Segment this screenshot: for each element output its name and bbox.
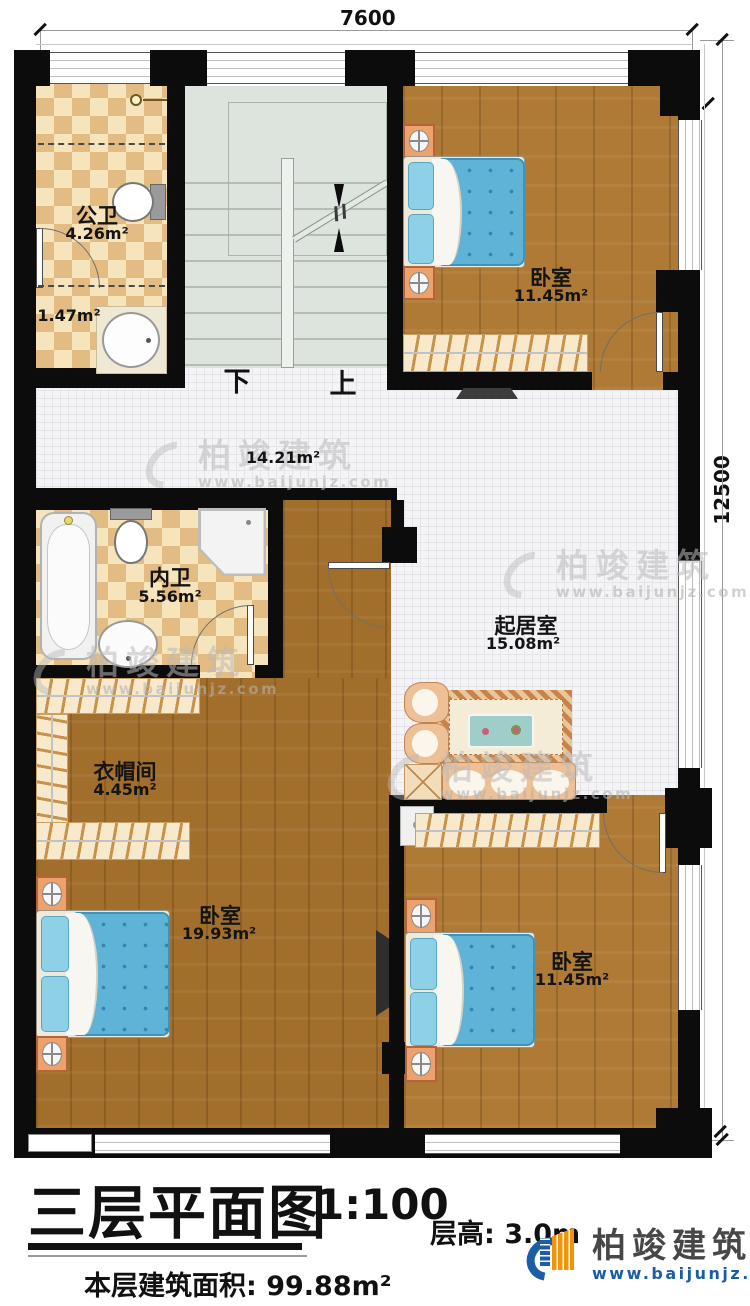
sofa-cushion [533,770,569,796]
wall-segment [268,510,283,678]
room-area-inner-bath: 5.56m² [138,587,201,606]
brand-logo-icon [528,1224,584,1288]
nightstand-plate [411,1052,431,1076]
break-zigzag [334,206,337,221]
wall-segment [255,665,283,678]
wall-segment [36,488,283,510]
room-area-hall: 14.21m² [246,448,320,467]
plan-scale: 1:100 [315,1180,449,1229]
brand-name: 柏竣建筑 [592,1229,750,1265]
title-underline-thin [28,1255,307,1257]
window [415,52,628,84]
window [678,865,702,1010]
top-dimension-line [40,30,692,31]
tv [456,388,518,399]
table-flower-icon [482,728,489,735]
stair-direction-arrow-up-icon [334,228,344,252]
wall-segment [665,788,712,848]
coffee-table [468,714,534,748]
bed-pillow [408,162,434,210]
wall-segment [387,372,592,390]
partition-dashed-line [38,285,165,287]
outer-reference-line [36,44,692,45]
nightstand-plate [42,882,62,906]
window [425,1134,620,1154]
toilet-bowl [112,182,154,222]
stair-direction-arrow-down-icon [334,184,344,208]
stair-up-label: 上 [330,362,357,401]
nightstand-plate [409,130,429,152]
toilet-tank [110,508,152,520]
logo-building-blue [540,1238,550,1266]
partition-dashed-line [38,143,165,145]
sink-faucet-dot [126,656,131,661]
nightstand [405,1046,437,1082]
window [95,1134,330,1154]
bathtub-faucet [64,516,73,525]
wardrobe [36,714,68,830]
wall-segment [283,488,397,500]
wall-lamp-stem [143,99,167,101]
room-area-bedroom-top: 11.45m² [514,286,588,305]
bathtub [40,512,97,660]
nightstand-plate [409,272,429,294]
room-area-public-bath: 4.26m² [65,224,128,243]
room-area-living: 15.08m² [486,634,560,653]
brand-url: www.baijunjz.com [592,1264,750,1283]
title-underline [28,1243,302,1250]
top-dimension-label: 7600 [340,6,396,30]
floor-plan-page: 7600 12500 下 上 [0,0,750,1306]
right-dimension-line [722,40,723,1140]
room-area-anteroom: 1.47m² [37,306,100,325]
outer-reference-line [704,44,705,1154]
stairwell [185,86,387,368]
room-area-cloakroom: 4.45m² [93,780,156,799]
wall-segment [382,527,417,563]
sofa-cushion [491,770,527,796]
nightstand [36,1036,68,1072]
brand-logo: 柏竣建筑 www.baijunjz.com [528,1224,750,1288]
bathtub-basin [47,524,90,650]
top-dimension-ext-right [692,30,693,50]
toilet-bowl [114,520,148,564]
sofa-cushion [449,770,485,796]
wardrobe [36,822,190,860]
wall-segment [663,372,678,390]
wardrobe [415,813,600,848]
wall-segment [14,50,36,1158]
stair-down-label: 下 [224,360,251,399]
room-area-bedroom-right: 11.45m² [535,970,609,989]
logo-building-orange [552,1228,574,1270]
armchair-cushion [412,730,438,757]
floor-area-label: 本层建筑面积: 99.88m² [84,1264,392,1303]
wall-segment [345,50,415,86]
window [207,52,345,84]
plan-title: 三层平面图 [28,1166,328,1250]
nightstand [36,876,68,912]
tv [376,930,389,1016]
stair-handrail [281,158,294,368]
wardrobe [403,334,588,372]
armchair-cushion [412,689,438,716]
window [678,561,702,768]
bed-pillow [41,976,69,1032]
top-dimension-ext-left [40,30,41,50]
window [50,52,150,84]
bed-pillow [41,916,69,972]
armchair [404,682,449,723]
sink-faucet-dot [146,338,151,343]
table-flower-icon [510,724,522,736]
window [678,120,702,270]
wall-segment [391,500,404,530]
bed-pillow [410,938,437,990]
sink-basin [102,312,160,368]
bed-pillow [410,992,437,1046]
corner-side-table [404,764,442,800]
sofa-seats [442,762,576,800]
shower-drain-dot [246,520,251,525]
wall-segment [167,50,185,388]
armchair [404,723,449,764]
room-area-bedroom-left: 19.93m² [182,924,256,943]
wall-notch [28,1134,92,1152]
wall-segment [656,270,700,312]
wall-segment [387,50,403,390]
wall-segment [36,665,200,678]
nightstand [403,124,435,158]
wall-segment [389,813,404,1128]
nightstand [405,898,437,934]
bed-pillow [408,214,434,264]
wardrobe [36,678,200,714]
nightstand-plate [42,1042,62,1066]
wall-lamp-icon [130,94,142,106]
nightstand [403,266,435,300]
nightstand-plate [411,904,431,928]
